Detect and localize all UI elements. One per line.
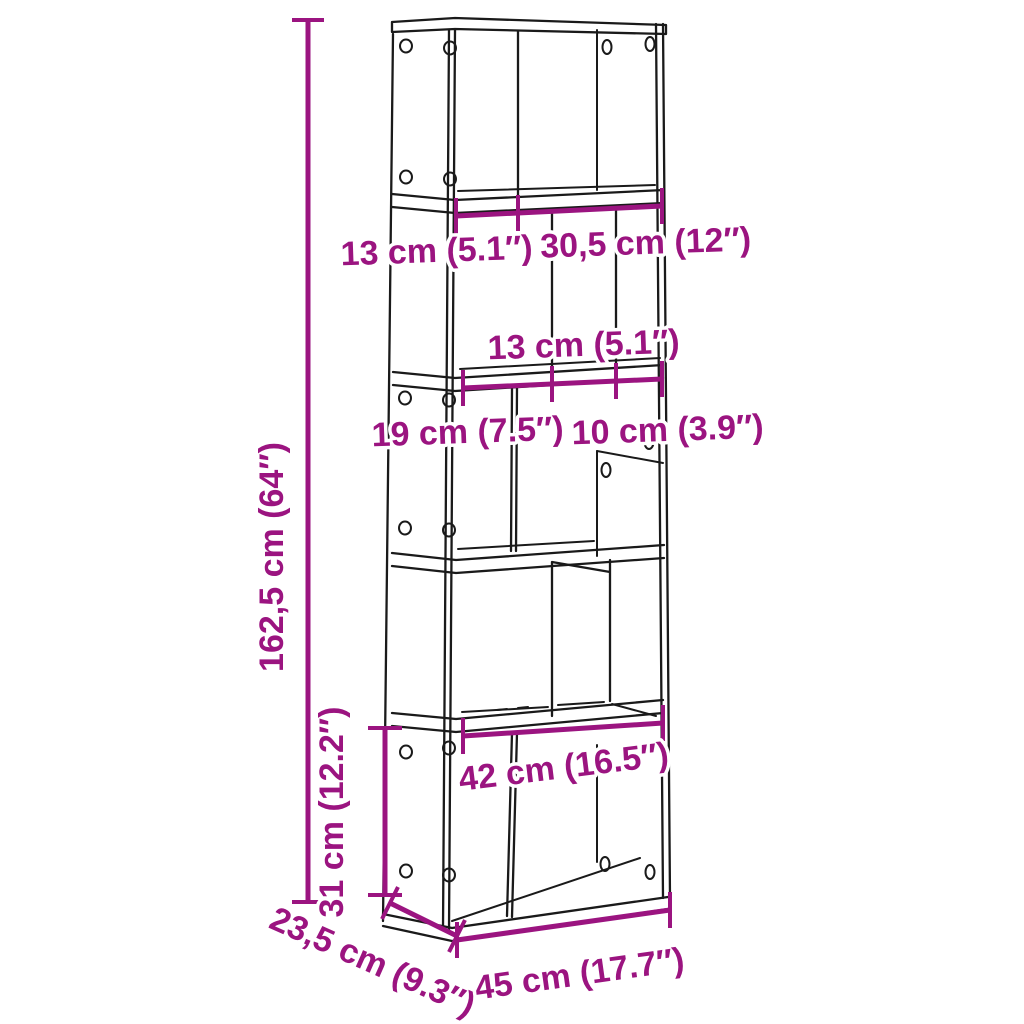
pin-hole <box>603 40 612 54</box>
dimension-labels: 162,5 cm (64″) 31 cm (12.2″) 13 cm (5.1″… <box>253 220 764 1024</box>
middle-right-compartment-label: 10 cm (3.9″) <box>571 408 764 453</box>
cabinet-left-side-panel <box>383 30 455 930</box>
pin-hole <box>400 40 412 53</box>
tier3-back-panel-edge <box>597 451 663 463</box>
product-dimension-diagram: 162,5 cm (64″) 31 cm (12.2″) 13 cm (5.1″… <box>0 0 1024 1024</box>
tier4-dividers <box>552 560 610 716</box>
shelf-3 <box>392 545 664 573</box>
cabinet-top-panel <box>392 18 666 34</box>
middle-compartment-label: 13 cm (5.1″) <box>487 323 680 368</box>
pin-hole <box>399 392 411 405</box>
depth-dimension-line <box>390 903 457 936</box>
middle-left-compartment-label: 19 cm (7.5″) <box>371 410 564 455</box>
middle-width-dimension-line <box>463 379 662 388</box>
pin-hole <box>602 463 611 477</box>
shelf-width-label: 42 cm (16.5″) <box>457 735 671 798</box>
top-left-compartment-label: 13 cm (5.1″) <box>340 229 533 274</box>
pin-hole <box>646 865 655 879</box>
bookcase-drawing <box>383 18 670 941</box>
pin-hole <box>400 746 412 759</box>
top-right-compartment-label: 30,5 cm (12″) <box>540 220 752 265</box>
pin-hole <box>399 522 411 535</box>
total-height-label: 162,5 cm (64″) <box>253 442 291 672</box>
total-width-label: 45 cm (17.7″) <box>472 941 686 1008</box>
pin-hole <box>646 37 655 51</box>
bottom-width-dimension-line <box>457 910 670 940</box>
base-height-label: 31 cm (12.2″) <box>313 707 351 918</box>
pin-hole <box>400 865 412 878</box>
pin-hole <box>400 171 412 184</box>
diagram-svg: 162,5 cm (64″) 31 cm (12.2″) 13 cm (5.1″… <box>0 0 1024 1024</box>
